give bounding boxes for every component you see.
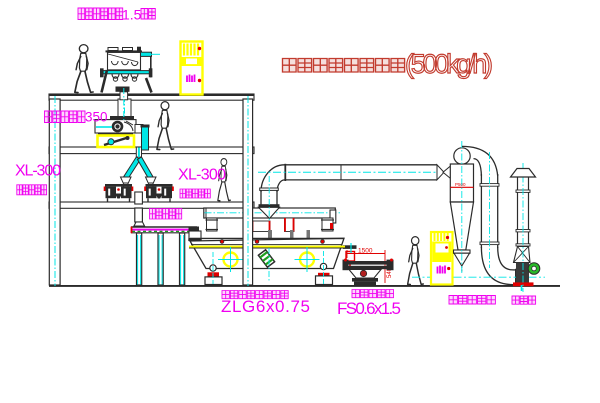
svg-text:1500: 1500 — [358, 248, 373, 255]
svg-text:350: 350 — [85, 110, 108, 125]
svg-text:(500kg/h): (500kg/h) — [405, 49, 493, 79]
svg-text:XL-300: XL-300 — [15, 163, 61, 180]
svg-text:ZLG6x0.75: ZLG6x0.75 — [221, 297, 310, 316]
svg-text:1.5: 1.5 — [122, 7, 142, 23]
svg-text:FS0.6x1.5: FS0.6x1.5 — [337, 299, 401, 318]
svg-text:P500: P500 — [455, 182, 466, 187]
svg-text:XL-300: XL-300 — [178, 167, 226, 184]
